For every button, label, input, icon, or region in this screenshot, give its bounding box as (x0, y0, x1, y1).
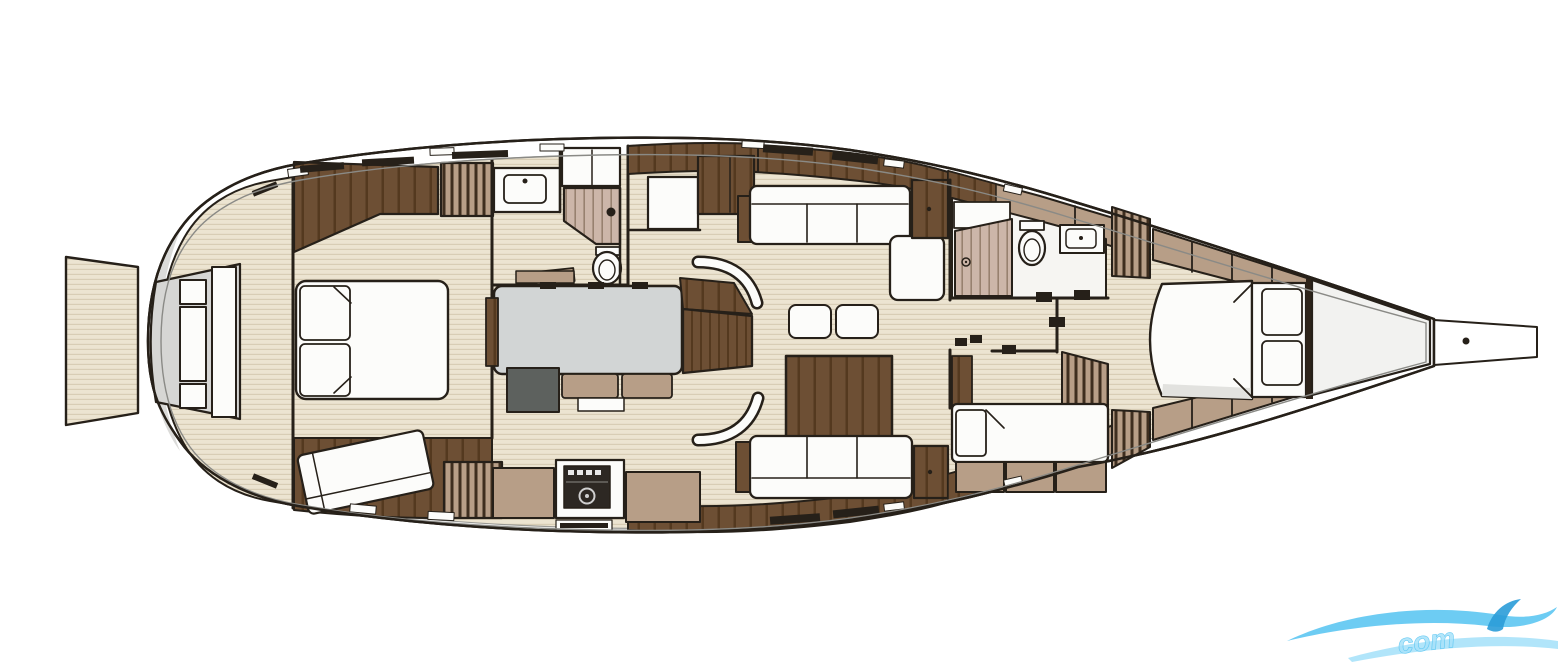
mid-hanging-locker (1112, 207, 1150, 278)
galley-cabinet (626, 472, 700, 522)
door-knob (970, 335, 982, 343)
deck-fitting (428, 511, 454, 520)
island-bench-cushion (562, 374, 618, 398)
bunk-berth (648, 177, 698, 229)
transom-locker-panel (180, 307, 206, 381)
deck-fitting (430, 148, 454, 156)
deck-hatch (560, 523, 608, 528)
berth-pillow (300, 344, 350, 396)
island-fitting (632, 282, 648, 289)
layout-drawing: com (0, 0, 1560, 670)
door-hinge (1002, 345, 1016, 354)
transom-locker-panel (212, 267, 236, 417)
yacht-layout-plan: com (0, 0, 1560, 670)
door-hinge (1074, 290, 1090, 300)
cabinet-handle (928, 470, 932, 474)
swim-platform (66, 257, 138, 425)
door-knob (955, 338, 967, 346)
aft-cabin-hanging-locker (441, 163, 493, 216)
door-hinge (1049, 317, 1065, 327)
galley-island (494, 286, 682, 374)
galley (486, 271, 700, 522)
stove-burner-center (585, 494, 589, 498)
transom-locker-panel (180, 384, 206, 408)
galley-cabinet (493, 468, 554, 518)
mid-head-shower (955, 219, 1012, 296)
galley-seat-cushion (516, 271, 574, 283)
door-hinge (1036, 292, 1052, 302)
salon-settee (750, 186, 910, 244)
island-end-seat (486, 298, 498, 366)
island-tray (578, 398, 624, 411)
deck-fitting (540, 144, 564, 151)
bowsprit-fitting (1463, 338, 1470, 345)
bowsprit-plank (1434, 320, 1537, 365)
settee-chaise (890, 236, 944, 300)
island-fitting (540, 282, 556, 289)
berth-pillow (1262, 289, 1302, 335)
companionway-stairs (683, 309, 752, 373)
island-bench-cushion (622, 374, 672, 398)
stove-knob (577, 470, 583, 475)
salon-end-table (736, 442, 750, 492)
chart-block (507, 368, 559, 412)
island-fitting (588, 282, 604, 289)
stove-knob (595, 470, 601, 475)
stove-knob (586, 470, 592, 475)
stair-newel-knob (607, 208, 616, 217)
bowsprit (1434, 320, 1537, 365)
mid-head-toilet (1019, 231, 1045, 265)
coffee-table (836, 305, 878, 338)
coffee-table (789, 305, 831, 338)
shower-drain-dot (965, 261, 967, 263)
stove-knob (568, 470, 574, 475)
berth-pillow (956, 410, 986, 456)
dining-table (786, 356, 892, 444)
berth-pillow (1262, 341, 1302, 385)
salon-sofa (750, 436, 912, 498)
forward-cabin (1150, 279, 1313, 399)
faucet-dot (1079, 236, 1083, 240)
toilet-tank (1020, 221, 1044, 230)
transom-locker-recess (151, 264, 240, 419)
aft-head-toilet (593, 252, 621, 284)
transom-locker-panel (180, 280, 206, 304)
guest-cabin-cabinet (952, 356, 972, 406)
faucet-dot (523, 179, 528, 184)
staircase-top-locker (562, 148, 620, 186)
cabinet-handle (927, 207, 931, 211)
berth-base-cushion (956, 462, 1004, 492)
